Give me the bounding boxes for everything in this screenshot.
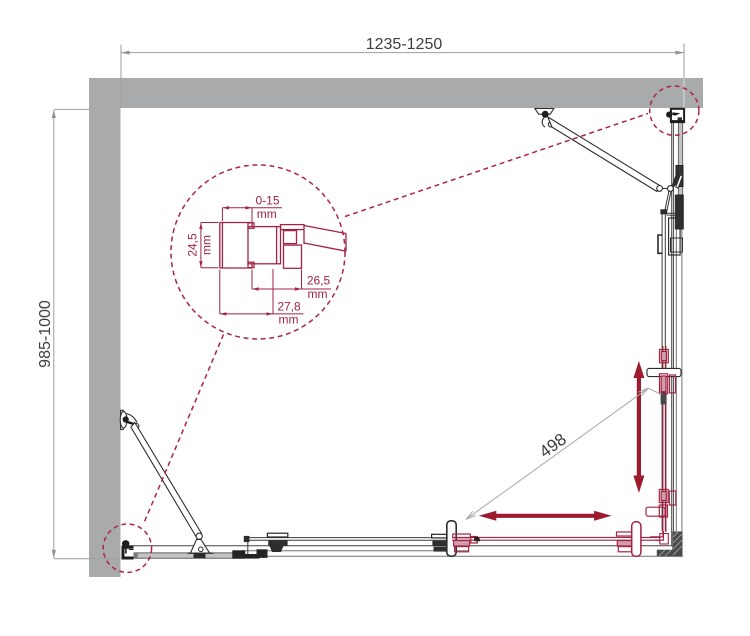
svg-text:mm: mm <box>308 287 328 301</box>
svg-text:24,5: 24,5 <box>186 233 200 257</box>
svg-text:0-15: 0-15 <box>255 193 279 207</box>
svg-text:mm: mm <box>200 235 214 255</box>
svg-text:498: 498 <box>536 430 570 462</box>
svg-text:985-1000: 985-1000 <box>37 300 54 368</box>
svg-text:1235-1250: 1235-1250 <box>366 36 443 53</box>
svg-text:mm: mm <box>257 207 277 221</box>
svg-text:27,8: 27,8 <box>277 299 301 313</box>
svg-text:mm: mm <box>279 312 299 326</box>
svg-text:26,5: 26,5 <box>307 273 331 287</box>
